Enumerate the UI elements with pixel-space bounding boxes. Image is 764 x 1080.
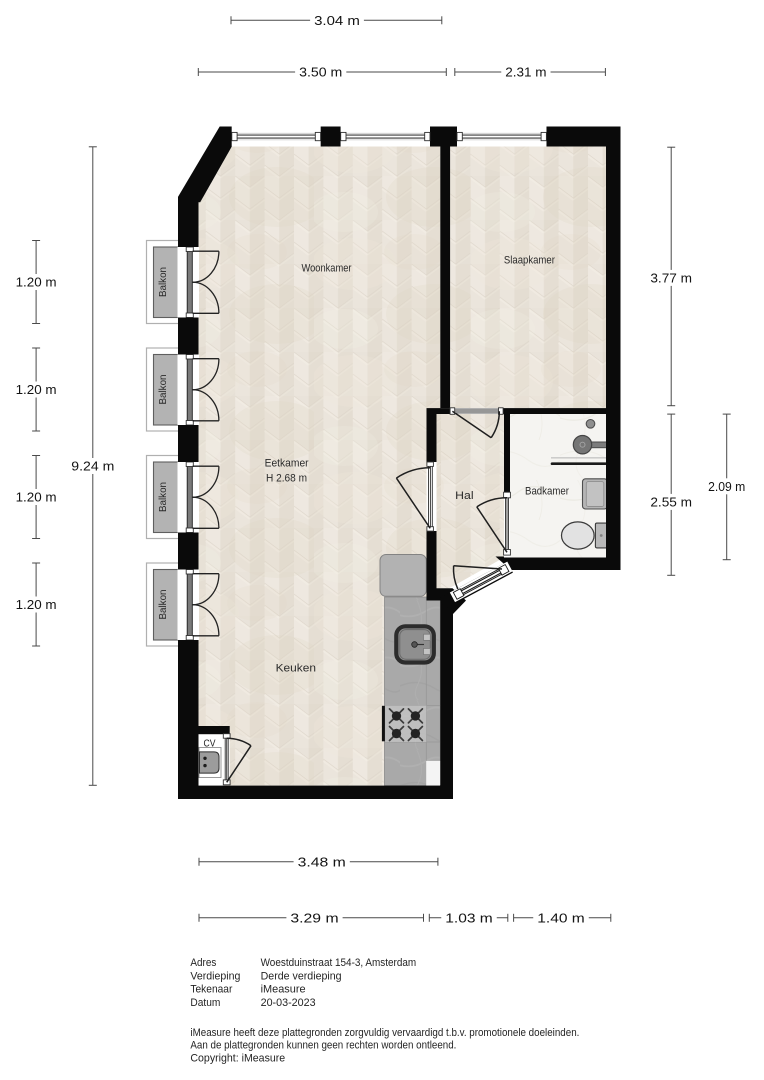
svg-text:3.04 m: 3.04 m	[314, 13, 360, 28]
svg-text:20-03-2023: 20-03-2023	[261, 997, 316, 1009]
svg-text:3.48 m: 3.48 m	[298, 854, 346, 869]
svg-text:Tekenaar: Tekenaar	[190, 984, 232, 996]
svg-text:CV: CV	[204, 739, 216, 750]
svg-text:Balkon: Balkon	[158, 590, 169, 620]
svg-text:Hal: Hal	[455, 490, 473, 502]
svg-text:1.20 m: 1.20 m	[16, 382, 57, 397]
svg-text:iMeasure: iMeasure	[261, 984, 306, 996]
svg-text:H 2.68 m: H 2.68 m	[266, 473, 307, 485]
svg-text:1.20 m: 1.20 m	[16, 490, 57, 505]
svg-text:2.31 m: 2.31 m	[505, 65, 546, 80]
svg-text:Datum: Datum	[190, 997, 220, 1009]
svg-text:Keuken: Keuken	[276, 662, 316, 674]
svg-text:iMeasure heeft deze plattegron: iMeasure heeft deze plattegronden zorgvu…	[190, 1027, 579, 1039]
svg-text:2.55 m: 2.55 m	[650, 495, 692, 510]
svg-text:Eetkamer: Eetkamer	[265, 457, 309, 469]
svg-text:Balkon: Balkon	[158, 267, 169, 297]
svg-text:Balkon: Balkon	[158, 482, 169, 512]
svg-text:1.40 m: 1.40 m	[537, 911, 585, 926]
svg-text:Derde verdieping: Derde verdieping	[261, 970, 342, 982]
svg-text:1.20 m: 1.20 m	[16, 275, 57, 290]
svg-text:Balkon: Balkon	[158, 375, 169, 405]
svg-text:3.77 m: 3.77 m	[650, 271, 692, 286]
svg-text:Adres: Adres	[190, 957, 216, 969]
svg-text:3.29 m: 3.29 m	[290, 911, 338, 926]
svg-text:Woestduinstraat 154-3, Amsterd: Woestduinstraat 154-3, Amsterdam	[261, 957, 417, 969]
svg-text:Verdieping: Verdieping	[190, 970, 240, 982]
svg-text:1.03 m: 1.03 m	[445, 911, 493, 926]
svg-text:Aan de plattegronden kunnen ge: Aan de plattegronden kunnen geen rechten…	[190, 1040, 456, 1052]
svg-text:2.09 m: 2.09 m	[708, 479, 745, 494]
svg-text:Copyright: iMeasure: Copyright: iMeasure	[190, 1052, 285, 1064]
svg-text:1.20 m: 1.20 m	[16, 597, 57, 612]
svg-text:3.50 m: 3.50 m	[299, 65, 342, 80]
svg-text:Slaapkamer: Slaapkamer	[504, 255, 555, 267]
svg-text:Woonkamer: Woonkamer	[302, 262, 352, 274]
svg-text:Badkamer: Badkamer	[525, 486, 569, 498]
svg-text:9.24 m: 9.24 m	[71, 459, 114, 474]
